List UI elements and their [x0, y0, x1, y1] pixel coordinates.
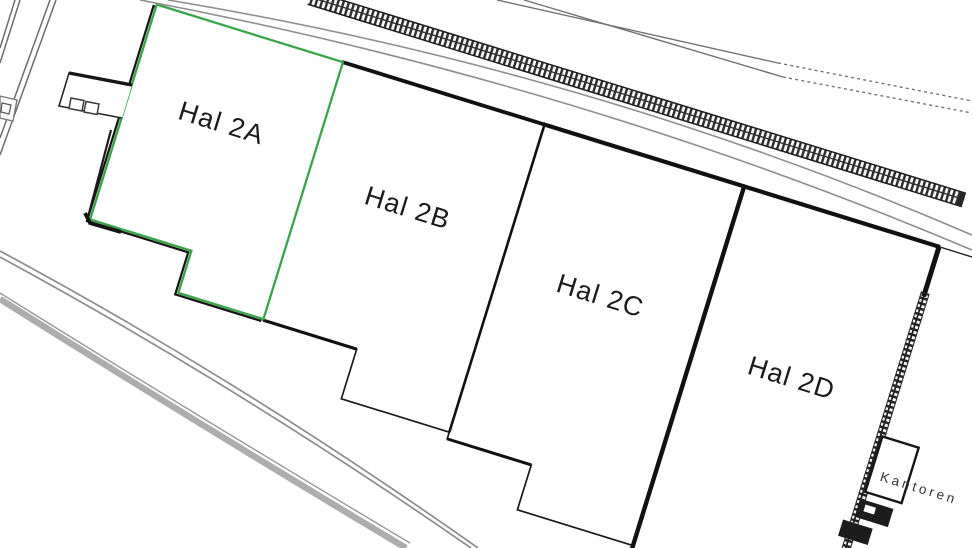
annex-unit-2 [84, 102, 99, 115]
survey-line-1-solid [497, 0, 778, 63]
survey-line-2-solid [524, 0, 783, 77]
building-complex: Hal 2A Hal 2B Hal 2C Hal 2D Kantoren [3, 0, 972, 548]
site-plan: Hal 2A Hal 2B Hal 2C Hal 2D Kantoren [0, 0, 972, 548]
parcel-line-1b [0, 0, 20, 63]
hall-2a-west-annex [59, 73, 132, 118]
survey-line-1-dashed [778, 63, 972, 101]
west-parcel-lines [0, 0, 56, 155]
annex-unit-1 [69, 98, 84, 111]
edge-structure [0, 96, 17, 121]
site-plan-canvas: Hal 2A Hal 2B Hal 2C Hal 2D Kantoren [0, 0, 972, 548]
survey-lines [497, 0, 972, 113]
